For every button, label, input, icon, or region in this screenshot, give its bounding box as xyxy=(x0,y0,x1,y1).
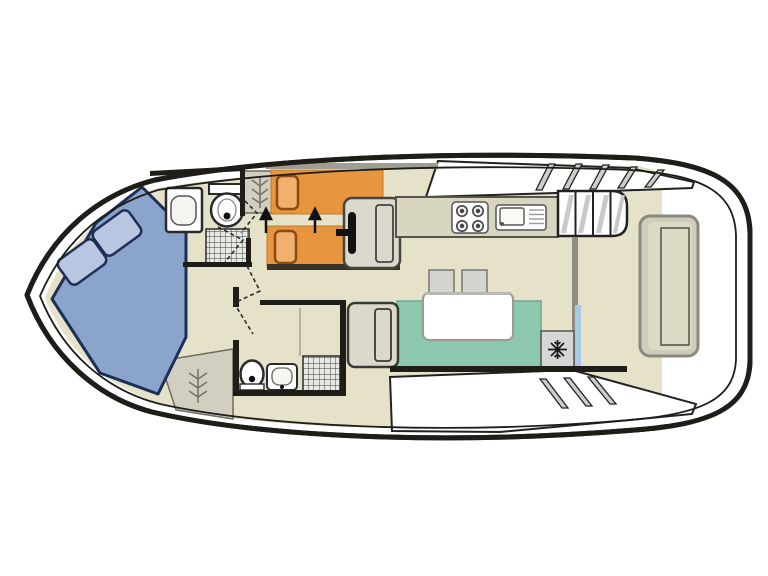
wall-saloon xyxy=(390,366,627,372)
toilet-dot xyxy=(249,376,255,382)
saloon-table xyxy=(423,293,513,340)
toilet-base xyxy=(240,384,264,390)
wall xyxy=(183,262,252,267)
toilet-dot xyxy=(224,213,231,220)
sink-basin xyxy=(272,368,292,385)
wall-door-post xyxy=(233,340,239,396)
shower-tray xyxy=(206,229,249,266)
sink-basin xyxy=(171,196,196,225)
stern-bench-cushion xyxy=(648,222,692,350)
companionway-steps xyxy=(558,191,627,236)
single-bed-pillow xyxy=(277,176,298,209)
aft-bench-seat xyxy=(348,303,398,367)
wall xyxy=(246,238,251,266)
steering-wheel-icon xyxy=(336,229,350,236)
helm-station xyxy=(336,198,400,268)
wall-aft-bathroom xyxy=(340,300,346,395)
faucet-dot xyxy=(500,222,504,226)
sliding-glass-door xyxy=(575,305,581,369)
stool xyxy=(429,270,454,294)
faucet-dot xyxy=(280,385,284,389)
deck-plan-svg xyxy=(0,0,768,576)
boat-floor-plan xyxy=(0,0,768,576)
shower-tray xyxy=(303,356,340,392)
wall xyxy=(240,167,245,216)
stern-bench xyxy=(640,216,698,356)
single-bed-pillow xyxy=(275,231,296,263)
wall-aft-bathroom xyxy=(260,300,346,305)
wall-aft-bathroom xyxy=(233,390,346,396)
stool xyxy=(462,270,487,294)
galley xyxy=(396,197,558,237)
galley-sink-basin xyxy=(500,208,524,225)
